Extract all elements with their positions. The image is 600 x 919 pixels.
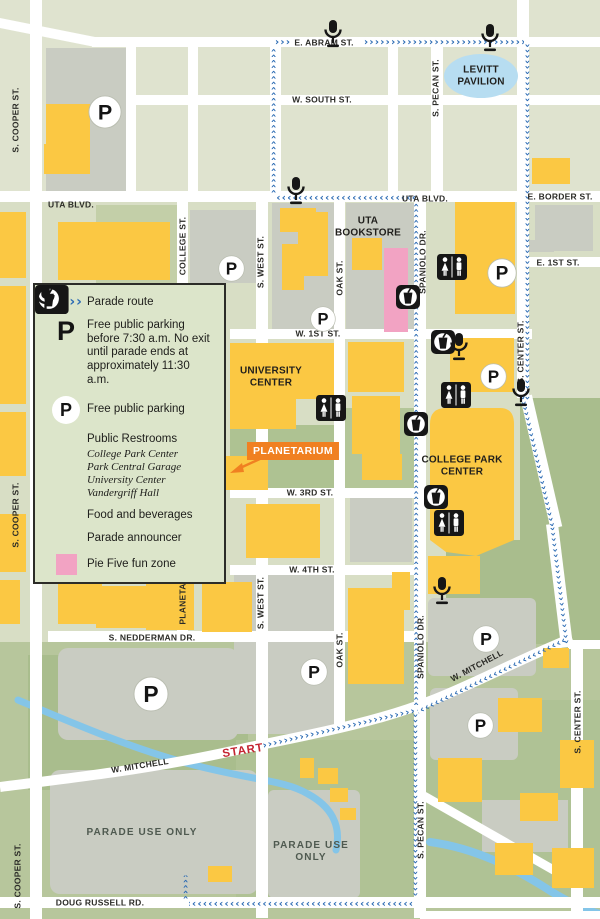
svg-text:P: P	[475, 716, 486, 735]
street-label: SPANIOLO DR.	[417, 615, 426, 679]
street-label: S. NEDDERMAN DR.	[109, 634, 196, 643]
street-label: S. COOPER ST.	[12, 482, 21, 547]
legend-item-free-parking: P Free public parking	[45, 396, 214, 424]
parade-route-segment: ›››››	[181, 876, 194, 900]
place-label: PARADE USE ONLY	[87, 827, 198, 839]
street-label: S. COOPER ST.	[14, 843, 23, 908]
legend-item-announcer: Parade announcer	[45, 531, 214, 546]
street-label: PLANETA	[179, 583, 188, 624]
street-label: W. SOUTH ST.	[292, 96, 352, 105]
street-label: OAK ST.	[336, 632, 345, 667]
parade-route-segment: ››››››››››››››››››››››››››››››	[269, 48, 282, 194]
svg-text:P: P	[143, 681, 158, 707]
street-label: S. CENTER ST.	[517, 320, 526, 383]
parade-route-segment: ››››››››››››››››››››››››››››››››››››››››…	[189, 896, 413, 909]
street-label: E. BORDER ST.	[527, 193, 592, 202]
svg-text:P: P	[318, 311, 329, 329]
place-label: PLANETARIUM	[247, 442, 339, 460]
street-label: S. CENTER ST.	[574, 690, 583, 753]
street-label: UTA BLVD.	[402, 195, 448, 204]
legend-item-restricted-parking: P Free public parking before 7:30 a.m. N…	[45, 318, 214, 388]
legend-item-parade-route: ››››› Parade route	[45, 295, 214, 310]
svg-text:P: P	[488, 367, 499, 386]
legend-label: Food and beverages	[87, 508, 214, 523]
legend: ››››› Parade route P Free public parking…	[33, 283, 226, 584]
restroom-location: College Park Center	[87, 448, 214, 461]
svg-text:P: P	[226, 259, 237, 278]
street-label: S. COOPER ST.	[12, 87, 21, 152]
parade-route-map: ››››› Parade route P Free public parking…	[0, 0, 600, 919]
place-label: UTA BOOKSTORE	[335, 216, 401, 239]
street-label: S. PECAN ST.	[432, 59, 441, 117]
legend-label: Public Restrooms College Park Center Par…	[87, 432, 214, 501]
street-label: UTA BLVD.	[48, 201, 94, 210]
street-label: S. WEST ST.	[257, 236, 266, 288]
street-label: S. PECAN ST.	[417, 801, 426, 859]
restroom-location: Vandergriff Hall	[87, 487, 214, 500]
legend-label: Pie Five fun zone	[87, 557, 214, 572]
legend-item-fun-zone: Pie Five fun zone	[45, 554, 214, 575]
restroom-location: Park Central Garage	[87, 461, 214, 474]
restroom-location: University Center	[87, 474, 214, 487]
legend-item-food: Food and beverages	[45, 508, 214, 523]
street-label: DOUG RUSSELL RD.	[56, 899, 144, 908]
legend-label: Free public parking	[87, 402, 214, 417]
svg-text:P: P	[308, 662, 320, 682]
legend-label: Free public parking before 7:30 a.m. No …	[87, 318, 214, 388]
restricted-parking-icon: P	[57, 318, 75, 345]
street-label: W. 4TH ST.	[289, 566, 334, 575]
street-label: S. WEST ST.	[257, 577, 266, 629]
legend-item-restrooms: Public Restrooms College Park Center Par…	[45, 432, 214, 501]
svg-text:P: P	[480, 629, 492, 649]
street-label: W. 3RD ST.	[287, 489, 333, 498]
place-label: UNIVERSITY CENTER	[240, 366, 302, 389]
place-label: COLLEGE PARK CENTER	[421, 455, 502, 478]
free-parking-icon: P	[52, 396, 80, 424]
parade-route-segment: ››››	[275, 37, 291, 50]
legend-label: Parade route	[87, 295, 214, 310]
street-label: E. 1ST ST.	[536, 259, 579, 268]
parade-route-segment: ››››››››››››››››››››››››››››››››	[364, 37, 524, 50]
svg-text:P: P	[496, 264, 509, 285]
place-label: PARADE USE ONLY	[273, 840, 349, 864]
street-label: OAK ST.	[336, 260, 345, 295]
street-label: COLLEGE ST.	[179, 217, 188, 275]
legend-label: Parade announcer	[87, 531, 214, 546]
fun-zone-icon	[56, 554, 77, 575]
place-label: LEVITT PAVILION	[457, 65, 504, 88]
svg-text:P: P	[98, 100, 112, 124]
